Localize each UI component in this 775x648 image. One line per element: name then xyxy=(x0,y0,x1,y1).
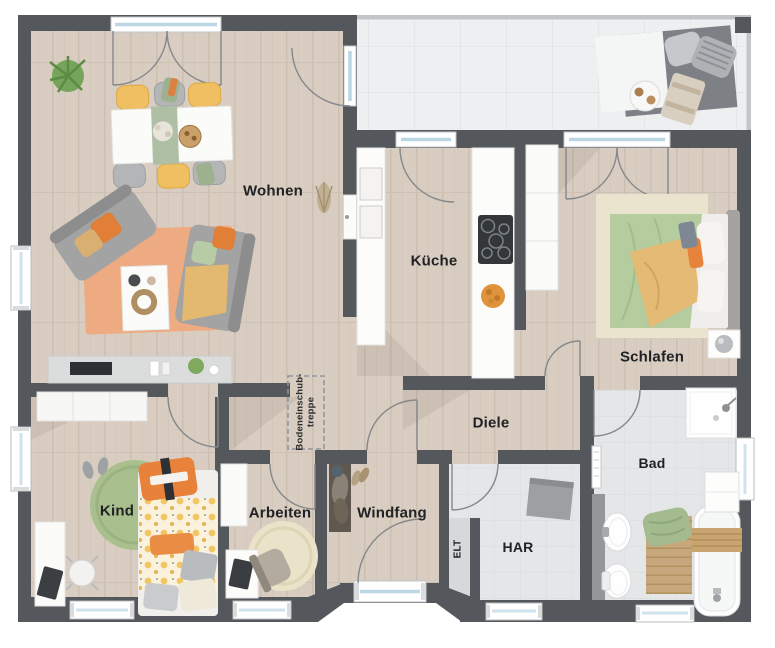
wall-diele-windfang-b xyxy=(417,450,452,464)
chair-yellow xyxy=(116,85,149,110)
window-bad-bottom xyxy=(636,605,694,622)
window-arbeiten-bottom xyxy=(233,601,291,619)
chair-gray xyxy=(113,163,146,188)
wall-diele-windfang-a xyxy=(315,450,367,464)
cooktop xyxy=(478,215,513,264)
wall-windfang-har xyxy=(439,464,449,600)
floor-plan: Wohnen Küche Schlafen Diele Bad Kind Arb… xyxy=(0,0,775,648)
wall-wohnen-kind-b xyxy=(218,383,290,397)
pillow-gray xyxy=(143,582,180,611)
attic-stairs-line1: Bodeneinschub- xyxy=(295,373,306,450)
room-label-diele: Diele xyxy=(473,415,510,432)
window-wohnen-left xyxy=(11,246,31,310)
nightstand xyxy=(708,330,740,358)
fruit-bowl xyxy=(481,284,505,308)
wall-elt-stub xyxy=(470,518,480,600)
room-label-arbeiten: Arbeiten xyxy=(249,505,311,522)
headboard xyxy=(726,210,740,332)
cup xyxy=(647,96,656,105)
attic-stairs-label: Bodeneinschub- treppe xyxy=(295,373,318,450)
elt-floor xyxy=(449,518,470,600)
door-wohnen-kueche xyxy=(344,195,357,239)
hat xyxy=(331,465,343,477)
cup xyxy=(635,88,644,97)
window-har-bottom xyxy=(486,603,542,620)
faucet xyxy=(713,594,721,602)
window-kind-bottom xyxy=(70,601,134,619)
window-kind-left xyxy=(11,427,31,491)
shower xyxy=(686,388,736,438)
room-label-schlafen: Schlafen xyxy=(620,349,684,366)
wall-diele-arbeiten-a xyxy=(229,450,270,464)
bowl xyxy=(179,125,202,148)
har-furniture xyxy=(526,478,574,520)
bed xyxy=(610,210,740,332)
room-label-elt: ELT xyxy=(453,540,464,559)
attic-stairs-line2: treppe xyxy=(306,373,317,450)
tv-lowboard xyxy=(48,356,232,383)
radiator xyxy=(592,446,601,488)
chair-yellow xyxy=(188,82,221,107)
room-label-windfang: Windfang xyxy=(357,505,427,522)
pillow xyxy=(696,269,726,313)
wall-outer-left xyxy=(18,15,31,622)
room-label-har: HAR xyxy=(503,539,534,555)
plant-small xyxy=(188,358,204,374)
wall-diele-har xyxy=(498,450,583,464)
bathtub xyxy=(692,506,742,616)
coffee-table xyxy=(121,265,169,331)
wardrobe xyxy=(526,145,558,290)
shelf xyxy=(221,464,247,526)
wall-arbeiten-windfang xyxy=(315,464,327,600)
chair-yellow xyxy=(157,163,190,188)
tv xyxy=(70,362,112,375)
bath-caddy xyxy=(692,528,742,552)
wall-har-bad xyxy=(580,376,594,612)
dining-set xyxy=(110,74,234,190)
terrace-border-top xyxy=(357,15,751,20)
room-label-kueche: Küche xyxy=(411,253,458,270)
room-label-kind: Kind xyxy=(100,503,134,520)
kitchen-sink xyxy=(360,168,382,200)
pillow-cream xyxy=(178,578,218,613)
desk-chair xyxy=(69,560,95,586)
floor-plan-drawing xyxy=(0,0,775,648)
wardrobe-kind xyxy=(37,392,147,421)
room-label-wohnen: Wohnen xyxy=(243,183,303,200)
serving-tray xyxy=(630,81,660,111)
bath-cabinet xyxy=(705,472,739,512)
terrace-corner-post xyxy=(735,17,751,33)
room-label-bad: Bad xyxy=(638,455,665,471)
bed-kind xyxy=(137,454,218,616)
